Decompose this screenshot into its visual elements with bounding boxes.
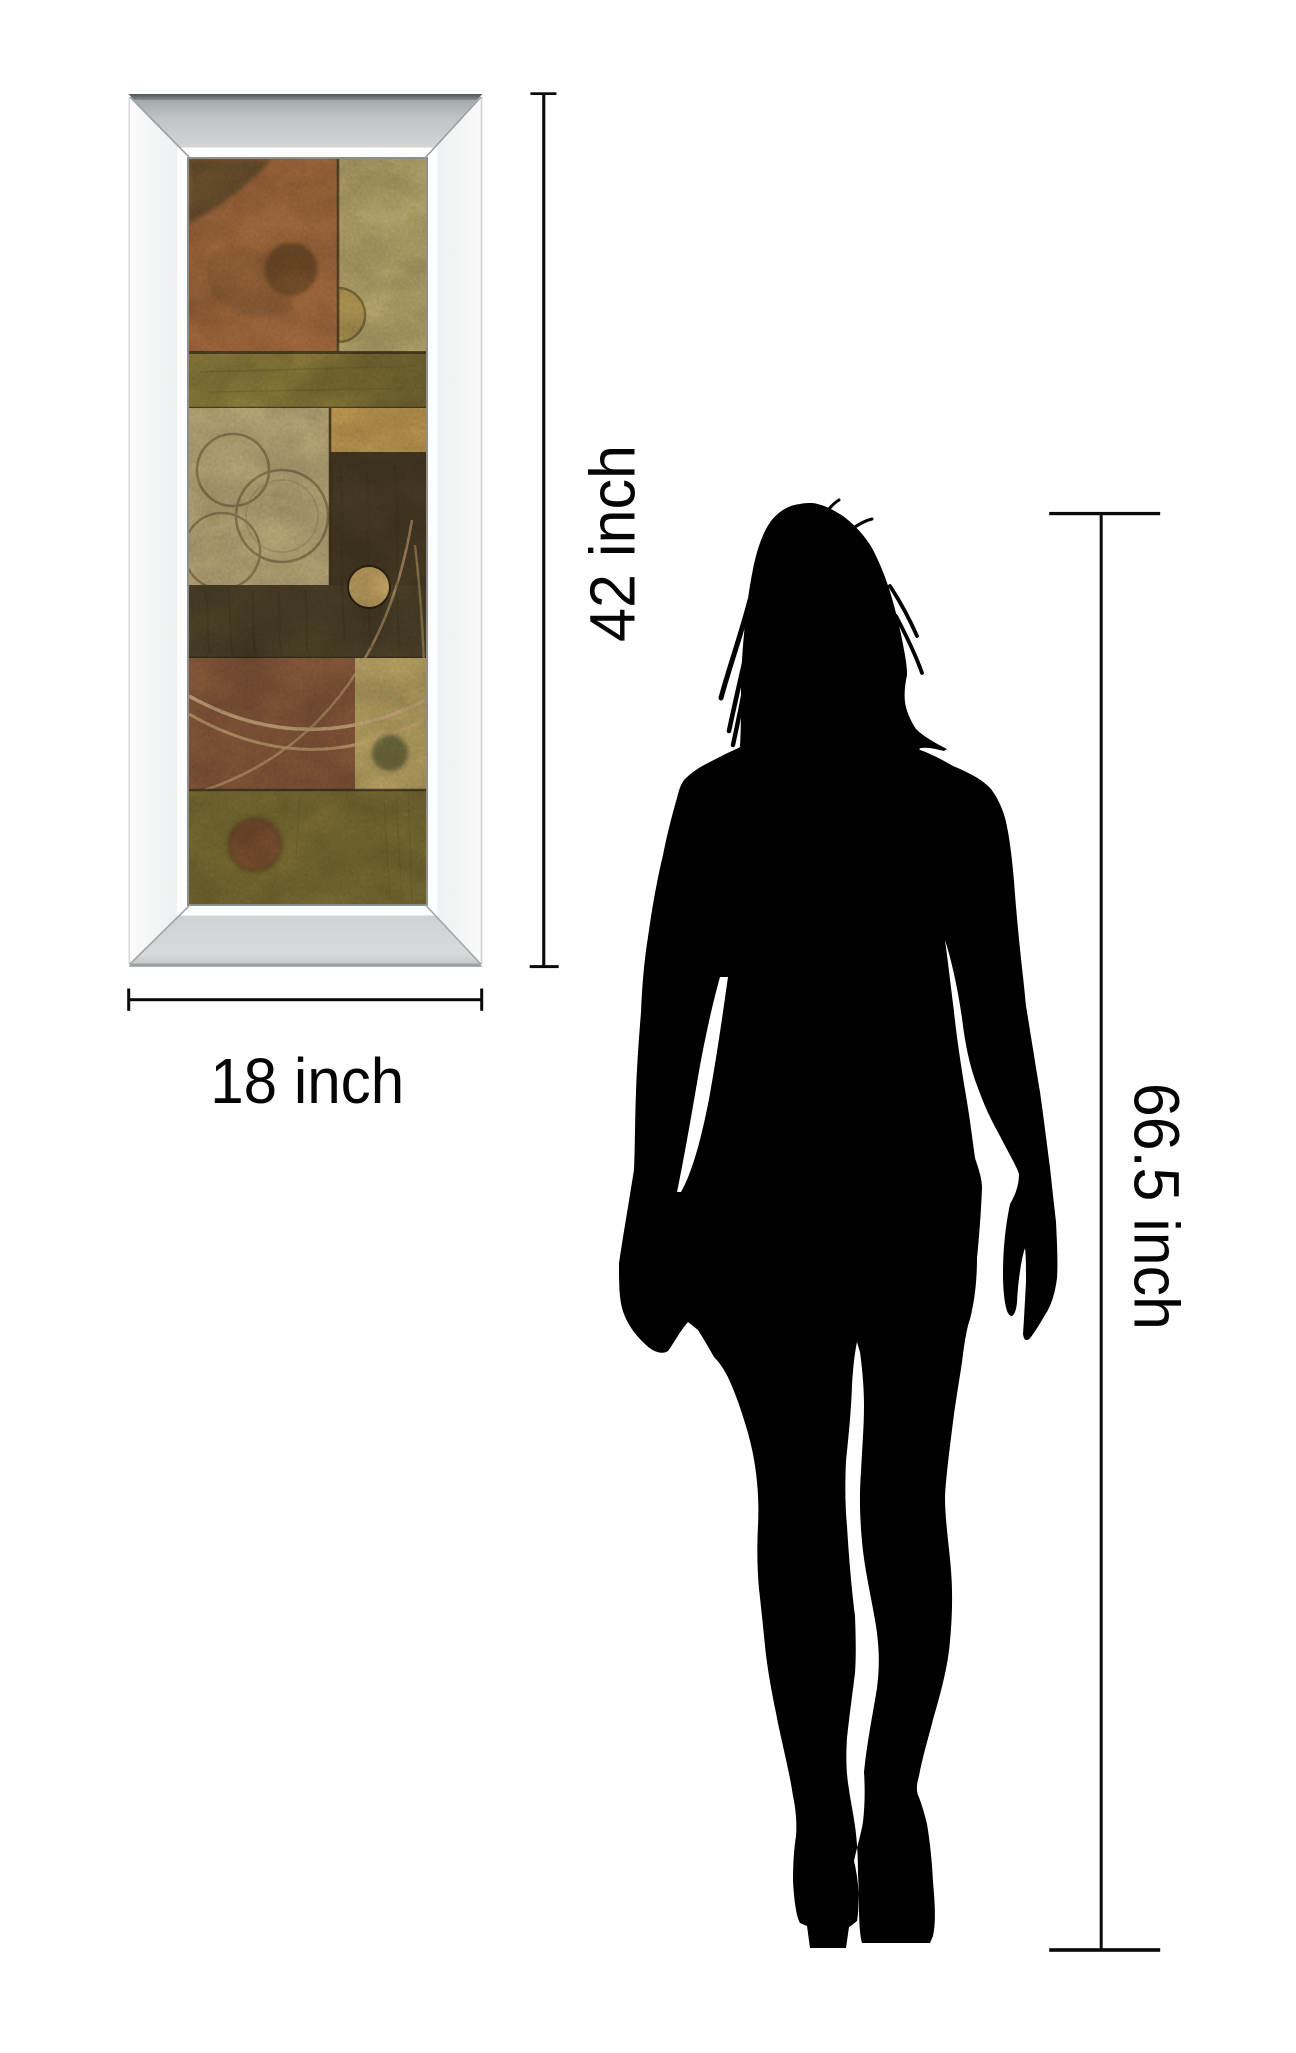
svg-text:42 inch: 42 inch [577, 445, 649, 642]
svg-text:66.5 inch: 66.5 inch [1121, 1083, 1193, 1330]
svg-text:18 inch: 18 inch [210, 1045, 404, 1117]
